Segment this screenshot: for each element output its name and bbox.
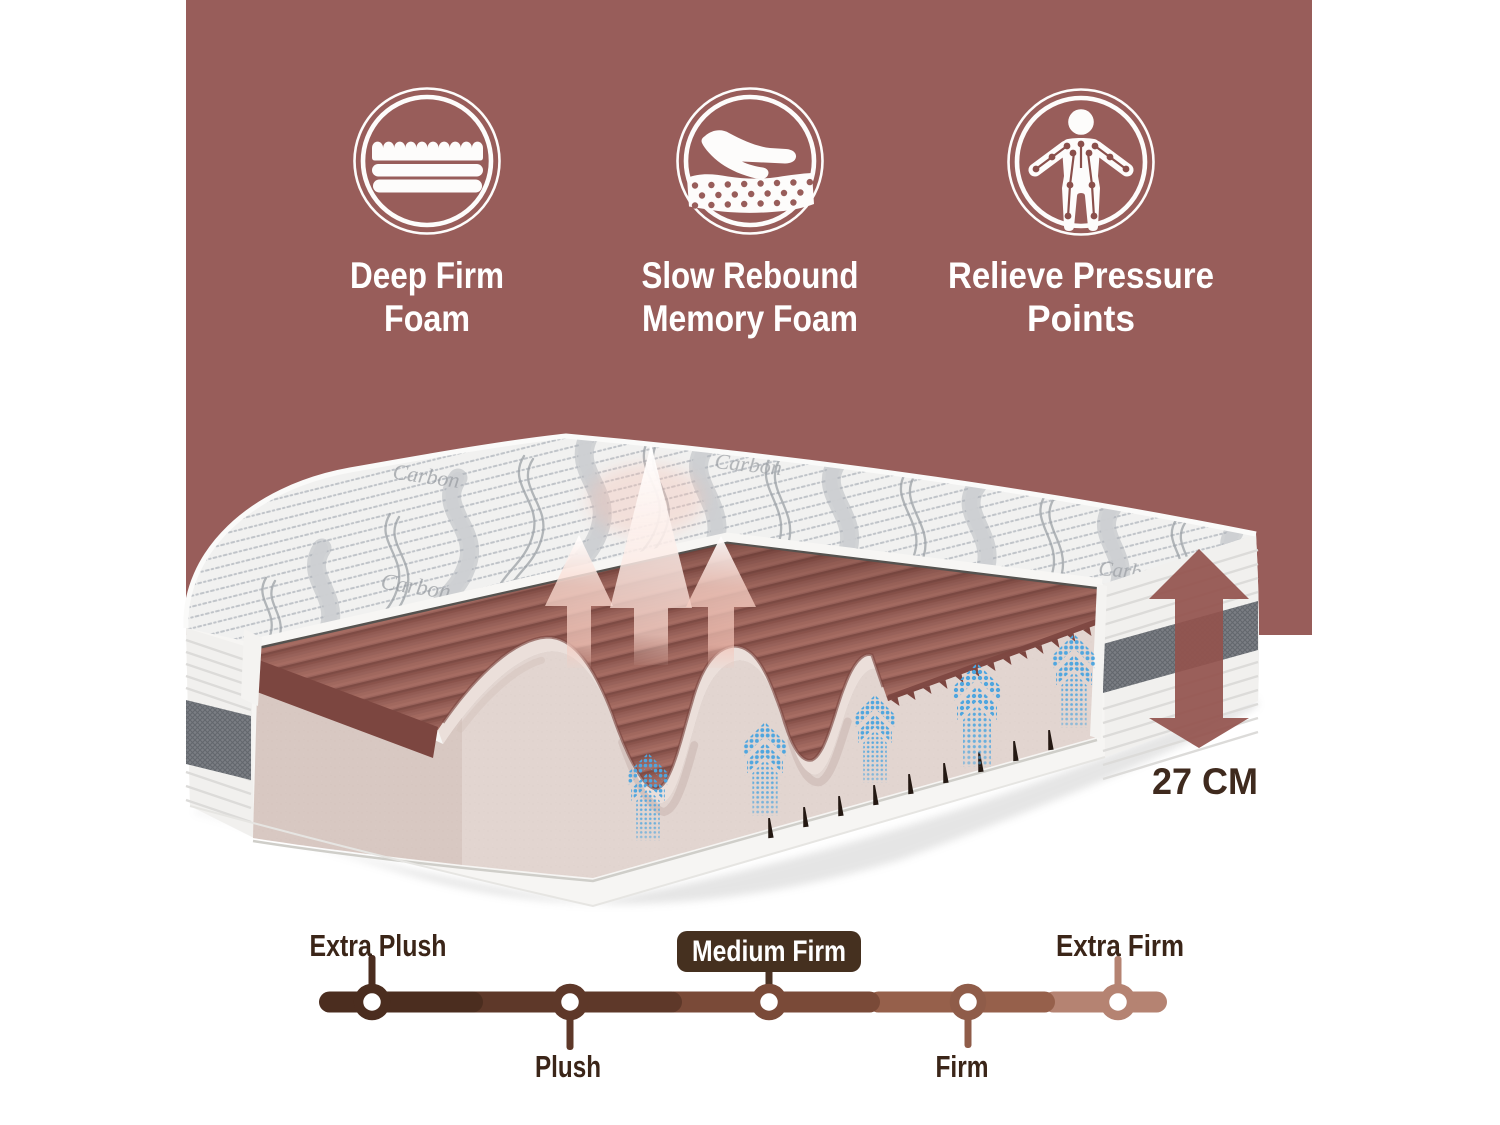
svg-text:Plush: Plush	[535, 1049, 601, 1084]
svg-text:Relieve Pressure: Relieve Pressure	[948, 255, 1214, 296]
svg-text:Firm: Firm	[936, 1049, 989, 1084]
svg-text:27 CM: 27 CM	[1152, 761, 1258, 802]
svg-text:Extra Firm: Extra Firm	[1056, 928, 1184, 963]
svg-text:Foam: Foam	[384, 298, 470, 339]
svg-text:Slow Rebound: Slow Rebound	[642, 255, 859, 296]
svg-text:Extra Plush: Extra Plush	[310, 928, 447, 963]
svg-text:Deep Firm: Deep Firm	[350, 255, 504, 296]
svg-text:Points: Points	[1027, 298, 1135, 339]
svg-text:Memory Foam: Memory Foam	[642, 298, 858, 339]
svg-text:Medium Firm: Medium Firm	[692, 935, 846, 968]
